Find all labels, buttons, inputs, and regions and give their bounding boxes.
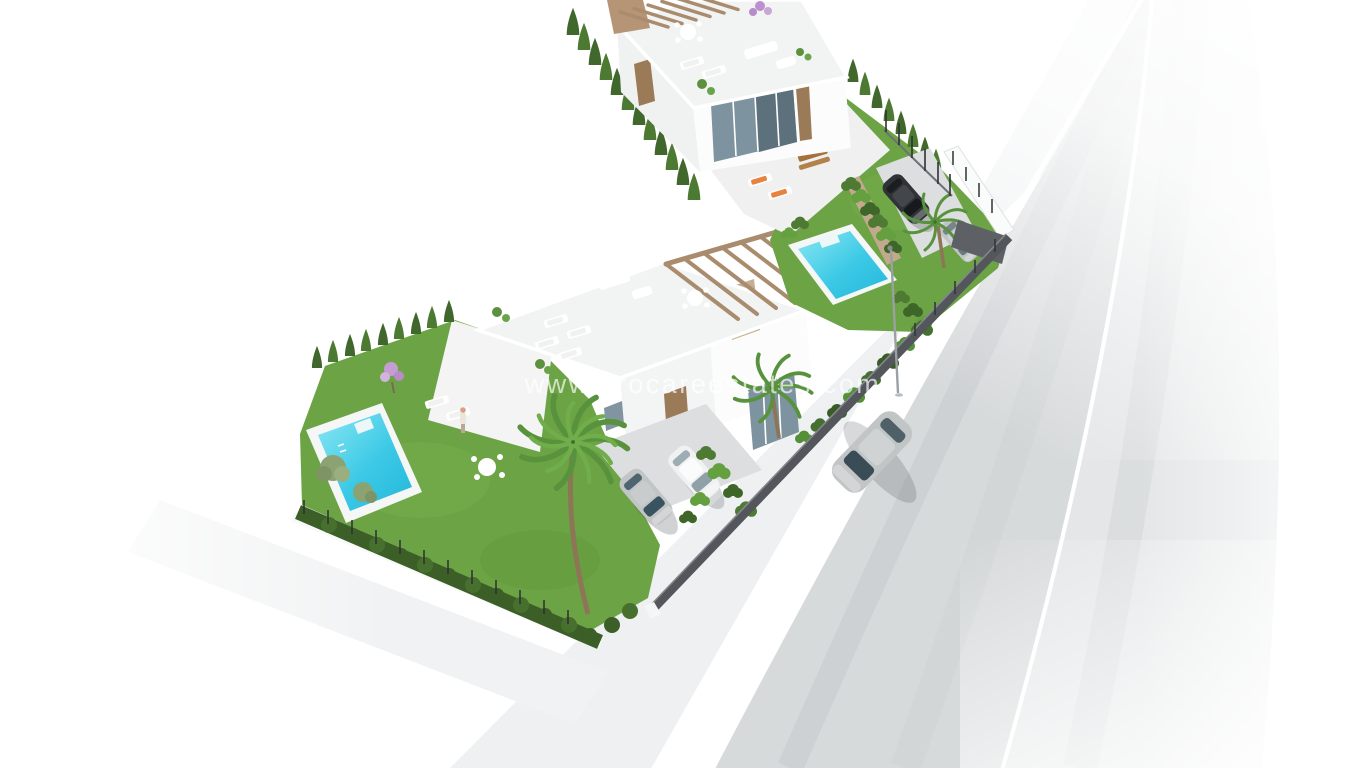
roof-plant: [492, 307, 502, 317]
render-viewport: www.procareestates.com: [0, 0, 1366, 768]
bougainvillea: [755, 1, 765, 11]
roof-plant: [697, 79, 707, 89]
watermark: www.procareestates.com: [524, 369, 882, 399]
roof-table: [680, 24, 696, 40]
pergola-wall: [607, 0, 650, 34]
road-fade-bottom: [960, 540, 1366, 768]
lamp-base: [895, 393, 903, 397]
aerial-render: www.procareestates.com: [0, 0, 1366, 768]
roof-table: [687, 290, 703, 306]
lamp-head: [887, 245, 892, 250]
garden-table: [478, 458, 496, 476]
